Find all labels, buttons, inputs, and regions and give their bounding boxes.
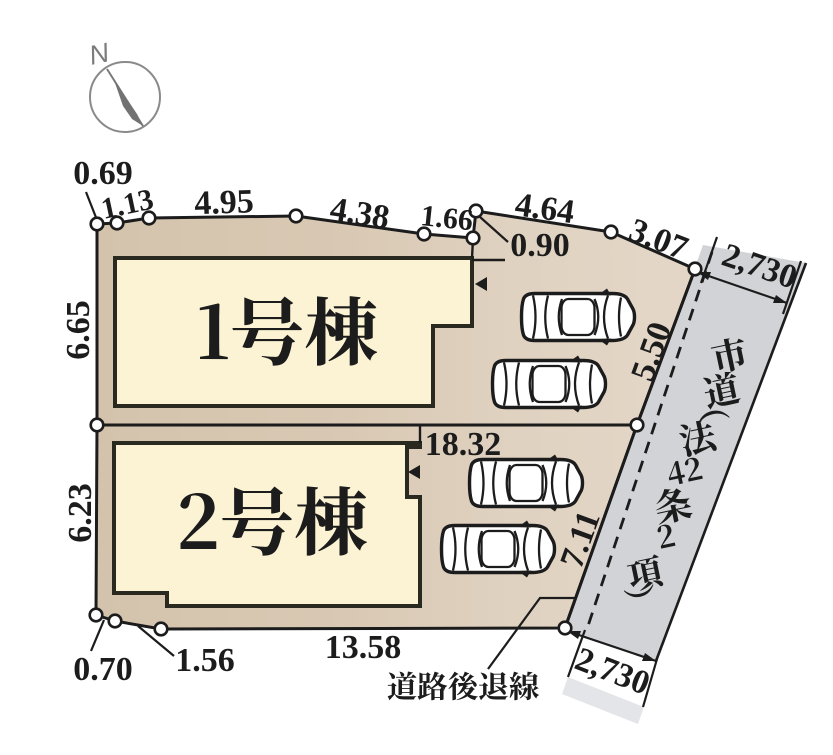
svg-text:4.95: 4.95 (194, 183, 255, 222)
svg-text:13.58: 13.58 (325, 629, 402, 666)
svg-text:0.70: 0.70 (73, 651, 133, 688)
svg-text:1.66: 1.66 (419, 199, 475, 237)
svg-text:6.23: 6.23 (62, 483, 99, 543)
svg-text:18.32: 18.32 (425, 426, 502, 463)
svg-text:1.56: 1.56 (175, 642, 235, 679)
svg-text:0.90: 0.90 (510, 227, 570, 264)
svg-text:0.69: 0.69 (73, 155, 133, 192)
svg-text:6.65: 6.65 (60, 300, 97, 360)
